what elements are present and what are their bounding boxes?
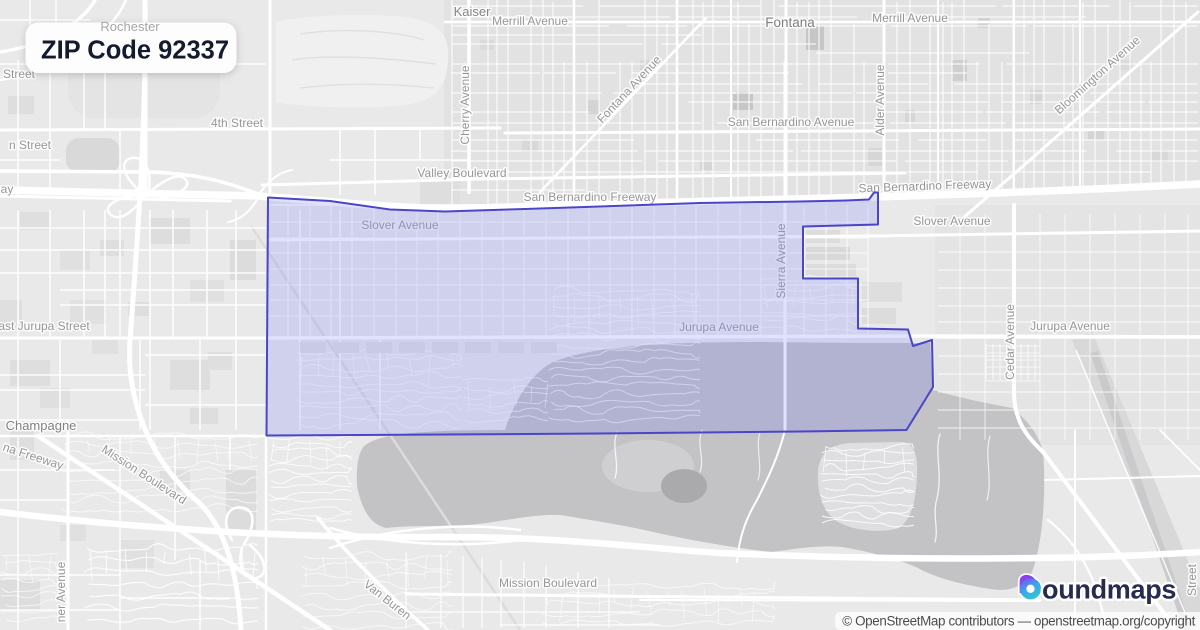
svg-text:San Bernardino Freeway: San Bernardino Freeway (524, 190, 657, 204)
svg-text:n Street: n Street (9, 138, 52, 152)
svg-text:oundmaps: oundmaps (1042, 575, 1176, 605)
svg-text:Valley Boulevard: Valley Boulevard (417, 166, 506, 180)
svg-text:4th Street: 4th Street (211, 116, 264, 130)
svg-text:© OpenStreetMap contributors —: © OpenStreetMap contributors — openstree… (842, 614, 1195, 629)
svg-text:San Bernardino Avenue: San Bernardino Avenue (728, 115, 855, 129)
svg-text:Mission Boulevard: Mission Boulevard (499, 576, 597, 590)
svg-text:Rochester: Rochester (100, 19, 160, 34)
svg-text:ZIP Code 92337: ZIP Code 92337 (41, 37, 229, 65)
svg-text:Merrill Avenue: Merrill Avenue (872, 11, 948, 25)
svg-text:Jurupa Avenue: Jurupa Avenue (679, 320, 759, 334)
svg-text:Sierra Avenue: Sierra Avenue (774, 223, 788, 298)
svg-text:Kaiser: Kaiser (454, 4, 492, 19)
svg-text:Slover Avenue: Slover Avenue (361, 218, 438, 232)
svg-text:Jurupa Avenue: Jurupa Avenue (1030, 319, 1110, 333)
svg-text:Slover Avenue: Slover Avenue (913, 214, 990, 228)
svg-text:ner Avenue: ner Avenue (54, 561, 68, 622)
svg-text:ay: ay (1, 182, 14, 196)
svg-text:Fontana: Fontana (765, 15, 815, 30)
svg-text:Merrill Avenue: Merrill Avenue (492, 14, 568, 28)
svg-text:Street: Street (1185, 563, 1199, 596)
svg-text:Champagne: Champagne (6, 418, 77, 433)
svg-text:Cedar Avenue: Cedar Avenue (1003, 304, 1017, 380)
svg-text:Alder Avenue: Alder Avenue (873, 64, 887, 135)
svg-text:ast Jurupa Street: ast Jurupa Street (0, 319, 90, 333)
svg-text:Cherry Avenue: Cherry Avenue (458, 65, 472, 144)
